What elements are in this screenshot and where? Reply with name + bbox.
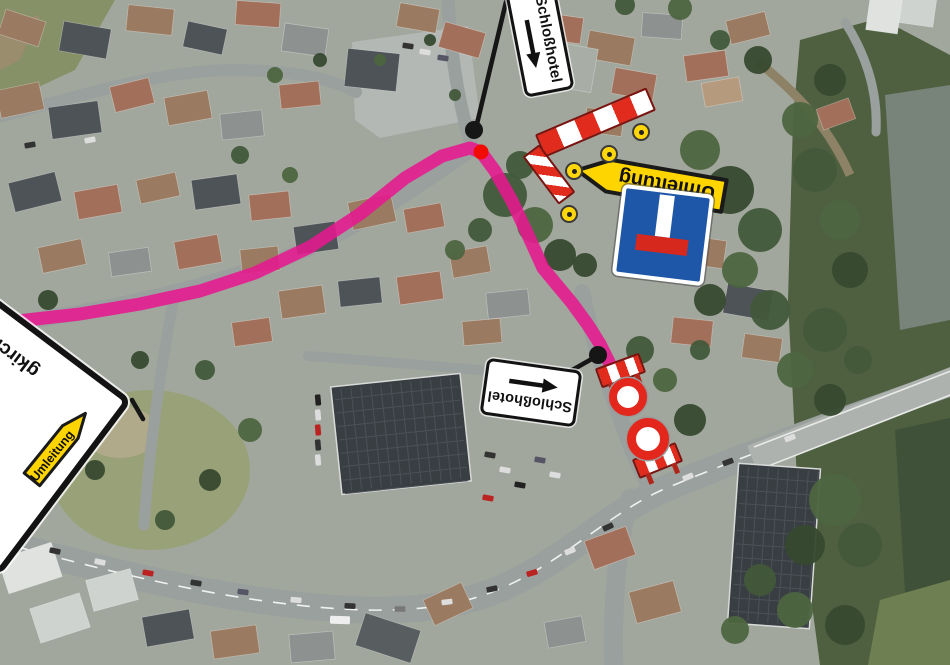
dead-end-sign-cap <box>635 234 689 256</box>
closure-point-dot <box>589 346 607 364</box>
aerial-detour-map: gkirche Umleitung Umleitung Schloßhotel <box>0 0 950 665</box>
dead-end-sign-bar <box>655 194 675 238</box>
no-entry-sign <box>627 418 669 460</box>
aerial-map-canvas <box>0 0 950 665</box>
pointer-end-dot <box>465 121 483 139</box>
no-entry-sign <box>609 378 647 416</box>
route-corner-dot <box>474 145 489 160</box>
dead-end-sign <box>612 184 715 287</box>
warning-lamp-icon <box>600 145 618 163</box>
warning-lamp-icon <box>565 162 583 180</box>
warning-lamp-icon <box>560 205 578 223</box>
warning-lamp-icon <box>632 123 650 141</box>
